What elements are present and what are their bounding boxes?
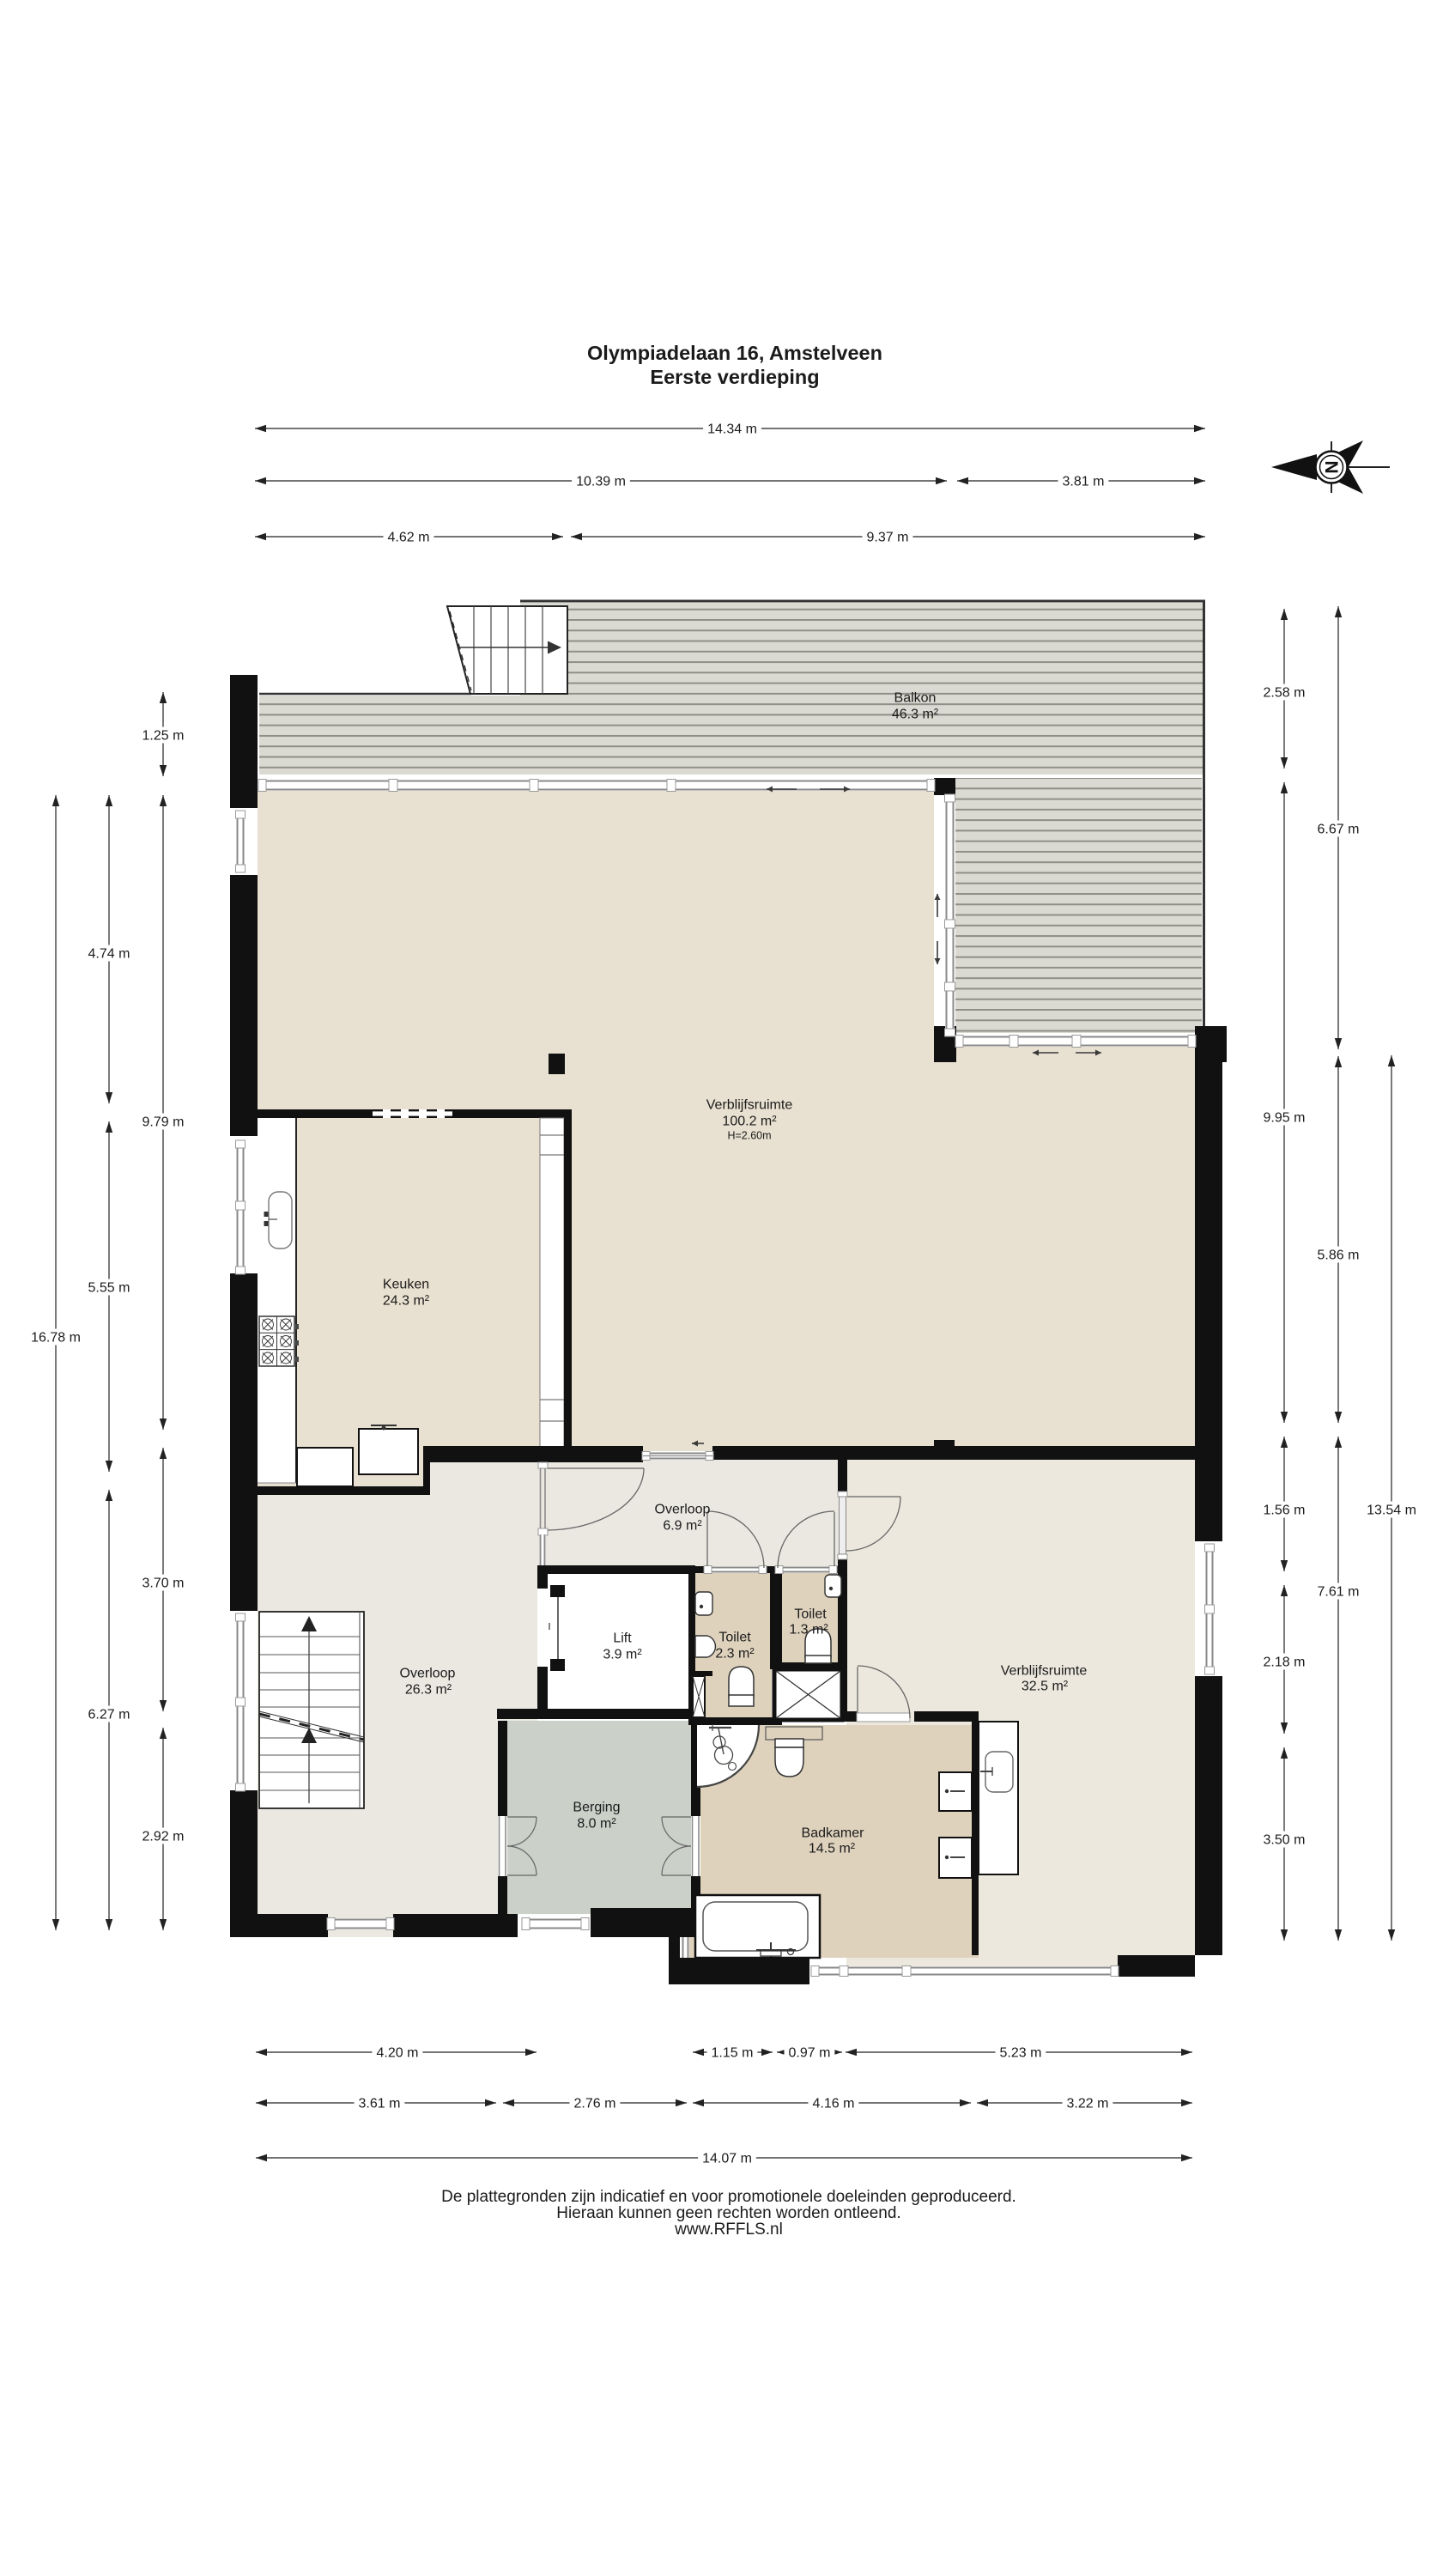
svg-text:6.27 m: 6.27 m	[88, 1708, 130, 1722]
svg-text:5.55 m: 5.55 m	[88, 1281, 130, 1296]
svg-text:14.07 m: 14.07 m	[702, 2152, 752, 2166]
svg-text:Overloop: Overloop	[655, 1503, 711, 1517]
svg-text:4.20 m: 4.20 m	[377, 2046, 419, 2061]
svg-text:6.67 m: 6.67 m	[1318, 823, 1360, 837]
svg-text:N: N	[1323, 460, 1343, 473]
svg-text:10.39 m: 10.39 m	[576, 475, 626, 489]
svg-text:2.3 m²: 2.3 m²	[715, 1647, 755, 1662]
svg-text:Berging: Berging	[573, 1801, 620, 1815]
svg-text:32.5 m²: 32.5 m²	[1022, 1680, 1069, 1694]
svg-text:Verblijfsruimte: Verblijfsruimte	[706, 1098, 793, 1113]
svg-text:14.5 m²: 14.5 m²	[809, 1842, 856, 1856]
svg-text:3.9 m²: 3.9 m²	[603, 1648, 642, 1662]
svg-text:Toilet: Toilet	[794, 1607, 827, 1622]
svg-text:1.15 m: 1.15 m	[712, 2046, 754, 2061]
svg-text:3.70 m: 3.70 m	[142, 1577, 185, 1591]
svg-text:1.56 m: 1.56 m	[1264, 1504, 1306, 1518]
svg-text:3.81 m: 3.81 m	[1063, 475, 1105, 489]
svg-text:5.86 m: 5.86 m	[1318, 1249, 1360, 1263]
svg-text:2.18 m: 2.18 m	[1264, 1656, 1306, 1670]
svg-text:3.50 m: 3.50 m	[1264, 1833, 1306, 1848]
svg-text:24.3 m²: 24.3 m²	[383, 1294, 430, 1309]
svg-text:4.74 m: 4.74 m	[88, 947, 130, 962]
svg-text:9.95 m: 9.95 m	[1264, 1111, 1306, 1126]
svg-text:0.97 m: 0.97 m	[789, 2046, 831, 2061]
svg-text:Badkamer: Badkamer	[802, 1826, 865, 1841]
svg-text:100.2 m²: 100.2 m²	[722, 1115, 777, 1129]
svg-text:9.37 m: 9.37 m	[867, 531, 909, 545]
svg-text:3.22 m: 3.22 m	[1067, 2097, 1109, 2111]
svg-text:13.54 m: 13.54 m	[1367, 1504, 1416, 1518]
svg-text:H=2.60m: H=2.60m	[727, 1130, 771, 1142]
svg-text:1.25 m: 1.25 m	[142, 729, 185, 744]
svg-text:2.58 m: 2.58 m	[1264, 686, 1306, 701]
svg-text:14.34 m: 14.34 m	[707, 422, 757, 437]
svg-text:Olympiadelaan 16, Amstelveen: Olympiadelaan 16, Amstelveen	[587, 342, 882, 364]
svg-text:1.3 m²: 1.3 m²	[789, 1623, 828, 1637]
svg-text:Toilet: Toilet	[718, 1631, 751, 1645]
svg-text:Keuken: Keuken	[383, 1278, 429, 1292]
svg-text:Lift: Lift	[613, 1631, 632, 1646]
svg-text:Hieraan kunnen geen rechten wo: Hieraan kunnen geen rechten worden ontle…	[556, 2204, 900, 2222]
svg-text:www.RFFLS.nl: www.RFFLS.nl	[674, 2221, 783, 2239]
svg-text:4.62 m: 4.62 m	[388, 531, 430, 545]
svg-text:Eerste verdieping: Eerste verdieping	[650, 366, 819, 388]
svg-text:26.3 m²: 26.3 m²	[405, 1683, 452, 1698]
svg-text:3.61 m: 3.61 m	[359, 2097, 401, 2111]
svg-text:7.61 m: 7.61 m	[1318, 1585, 1360, 1600]
svg-text:9.79 m: 9.79 m	[142, 1115, 185, 1130]
svg-text:Balkon: Balkon	[894, 691, 937, 706]
svg-text:8.0 m²: 8.0 m²	[577, 1817, 616, 1832]
svg-text:2.76 m: 2.76 m	[574, 2097, 616, 2111]
svg-text:Verblijfsruimte: Verblijfsruimte	[1001, 1664, 1088, 1679]
svg-text:2.92 m: 2.92 m	[142, 1830, 185, 1844]
svg-text:5.23 m: 5.23 m	[1000, 2046, 1042, 2061]
svg-text:6.9 m²: 6.9 m²	[663, 1519, 702, 1534]
svg-text:16.78 m: 16.78 m	[31, 1331, 81, 1346]
svg-text:4.16 m: 4.16 m	[813, 2097, 855, 2111]
svg-text:Overloop: Overloop	[400, 1667, 456, 1681]
svg-text:46.3 m²: 46.3 m²	[892, 708, 939, 722]
svg-text:De plattegronden zijn indicati: De plattegronden zijn indicatief en voor…	[441, 2188, 1016, 2206]
